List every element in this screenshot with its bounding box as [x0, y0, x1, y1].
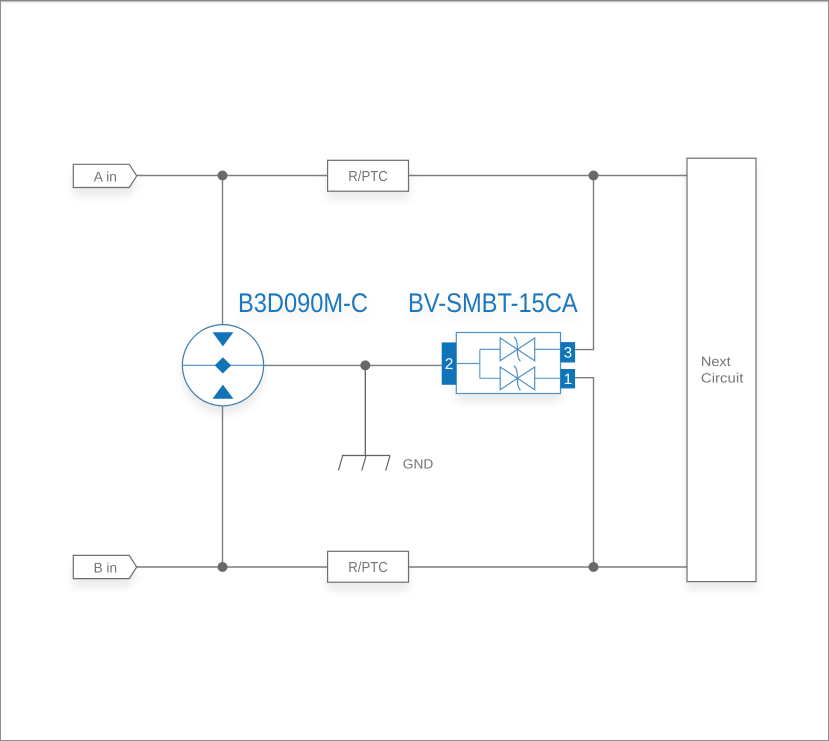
- svg-text:BV-SMBT-15CA: BV-SMBT-15CA: [408, 288, 578, 318]
- svg-text:2: 2: [445, 356, 454, 373]
- svg-text:1: 1: [564, 371, 572, 388]
- svg-text:GND: GND: [403, 457, 434, 472]
- svg-text:Circuit: Circuit: [701, 371, 744, 386]
- svg-text:B3D090M-C: B3D090M-C: [238, 288, 368, 318]
- svg-text:Next: Next: [701, 354, 731, 369]
- svg-text:R/PTC: R/PTC: [348, 560, 388, 576]
- svg-text:B in: B in: [94, 560, 117, 576]
- svg-text:3: 3: [564, 345, 572, 362]
- svg-text:A in: A in: [94, 169, 117, 185]
- svg-text:R/PTC: R/PTC: [348, 169, 388, 185]
